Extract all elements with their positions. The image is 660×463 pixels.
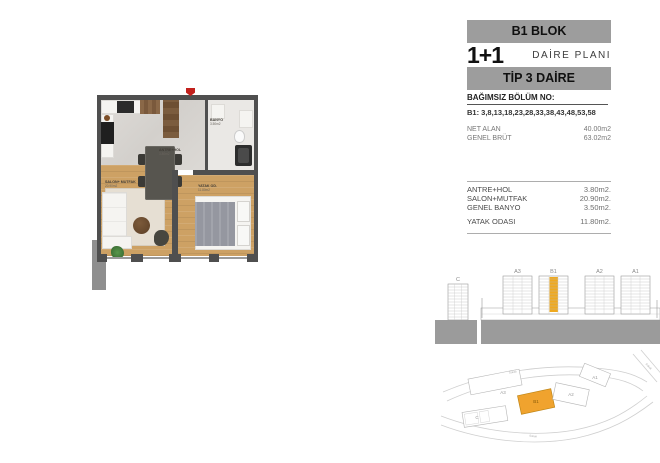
wall-right [254, 95, 258, 262]
floor-plan: SALON+ MUTFAK 20.90m2 ANTRE+HOL 3.80m2 B… [97, 88, 258, 290]
room-name: ANTRE+HOL [159, 148, 181, 152]
road [633, 354, 657, 382]
wall-left [97, 95, 101, 262]
window-pier [209, 254, 219, 262]
tip-title-bar: TİP 3 DAİRE [467, 67, 611, 90]
room-row-value: 20.90m2. [580, 194, 611, 203]
building-label-b1: B1 [550, 269, 557, 275]
ground-main [481, 320, 660, 344]
bathtub-inner [238, 148, 249, 163]
room-label-salon: SALON+ MUTFAK 20.90m2 [105, 180, 136, 188]
room-row-label: YATAK ODASI [467, 217, 515, 226]
room-area: 3.50m2 [210, 122, 223, 126]
room-row: GENEL BANYO 3.50m2. [467, 203, 611, 212]
room-row-value: 3.50m2. [584, 203, 611, 212]
summary-row: GENEL BRÜT 63.02m2 [467, 135, 611, 142]
room-row: YATAK ODASI 11.80m2. [467, 217, 611, 226]
room-name: BANYO [210, 118, 223, 122]
building-a3 [503, 276, 532, 314]
info-panel: B1 BLOK 1+1 DAİRE PLANI TİP 3 DAİRE BAĞI… [467, 20, 611, 240]
wardrobe [163, 100, 179, 138]
room-name: SALON+ MUTFAK [105, 180, 136, 184]
building-a1 [621, 276, 650, 314]
divider [467, 233, 611, 234]
room-row: SALON+MUTFAK 20.90m2. [467, 194, 611, 203]
wall-bedroom-top [193, 170, 254, 175]
building-label-c: C [456, 277, 460, 283]
pouf [133, 217, 150, 234]
unit-type: 1+1 [467, 44, 503, 66]
building-label-a2: A2 [596, 269, 603, 275]
building-label-a1: A1 [632, 269, 639, 275]
washing-machine [211, 104, 225, 119]
window-pier [169, 254, 181, 262]
room-row-label: GENEL BANYO [467, 203, 521, 212]
summary-label: NET ALAN [467, 126, 501, 133]
block-c [462, 406, 508, 428]
wall-bedroom-left [172, 170, 178, 255]
unit-type-label: DAİRE PLANI [532, 50, 611, 61]
room-label-yatak: YATAK OD. 11.80m2 [198, 184, 217, 192]
toilet [234, 130, 245, 143]
building-b1-highlight [550, 277, 559, 312]
coffee-machine [104, 115, 110, 121]
room-area: 3.80m2 [159, 152, 181, 156]
wall-top [97, 95, 258, 100]
bed-blanket [195, 202, 235, 246]
room-label-banyo: BANYO 3.50m2 [210, 118, 223, 126]
room-row-value: 11.80m2. [580, 217, 611, 226]
building-label-a3: A3 [514, 269, 521, 275]
pillow [237, 225, 250, 246]
room-area: 20.90m2 [105, 184, 136, 188]
kitchen-cabinet [140, 100, 160, 114]
summary-value: 40.00m2 [584, 126, 611, 133]
room-area: 11.80m2 [198, 188, 217, 192]
summary-row: NET ALAN 40.00m2 [467, 126, 611, 133]
building-a2 [585, 276, 614, 314]
pillow [237, 201, 250, 222]
unit-type-row: 1+1 DAİRE PLANI [467, 44, 611, 66]
section-value: B1: 3,8,13,18,23,28,33,38,43,48,53,58 [467, 108, 611, 117]
window-pier [131, 254, 143, 262]
svg-text:Sokak: Sokak [529, 434, 538, 439]
room-row: ANTRE+HOL 3.80m2. [467, 185, 611, 194]
block-label-a3: A3 [500, 390, 506, 395]
site-plan: A3 B1 A2 A1 C Sokak Sokak Sokak [435, 346, 660, 460]
summary-value: 63.02m2 [584, 135, 611, 142]
kitchen-sink [101, 122, 114, 144]
block-label-a2: A2 [568, 392, 574, 397]
room-label-antre: ANTRE+HOL 3.80m2 [159, 148, 181, 156]
stove [117, 101, 134, 113]
block-label-a1: A1 [592, 375, 598, 380]
ground-left [435, 320, 477, 344]
summary-label: GENEL BRÜT [467, 135, 511, 142]
room-row-value: 3.80m2. [584, 185, 611, 194]
road-label: Sokak [529, 434, 538, 439]
block-label-b1: B1 [533, 399, 539, 404]
bathroom-sink [239, 110, 253, 128]
divider [467, 181, 611, 182]
room-row-label: SALON+MUTFAK [467, 194, 527, 203]
elevation-diagram: C A3 B1 A2 A1 [435, 258, 660, 346]
brochure-page: SALON+ MUTFAK 20.90m2 ANTRE+HOL 3.80m2 B… [0, 0, 660, 463]
road [641, 350, 660, 377]
block-title-bar: B1 BLOK [467, 20, 611, 43]
wall-bathroom [205, 100, 208, 170]
room-row-label: ANTRE+HOL [467, 185, 512, 194]
section-label: BAĞIMSIZ BÖLÜM NO: [467, 93, 608, 105]
room-name: YATAK OD. [198, 184, 217, 188]
